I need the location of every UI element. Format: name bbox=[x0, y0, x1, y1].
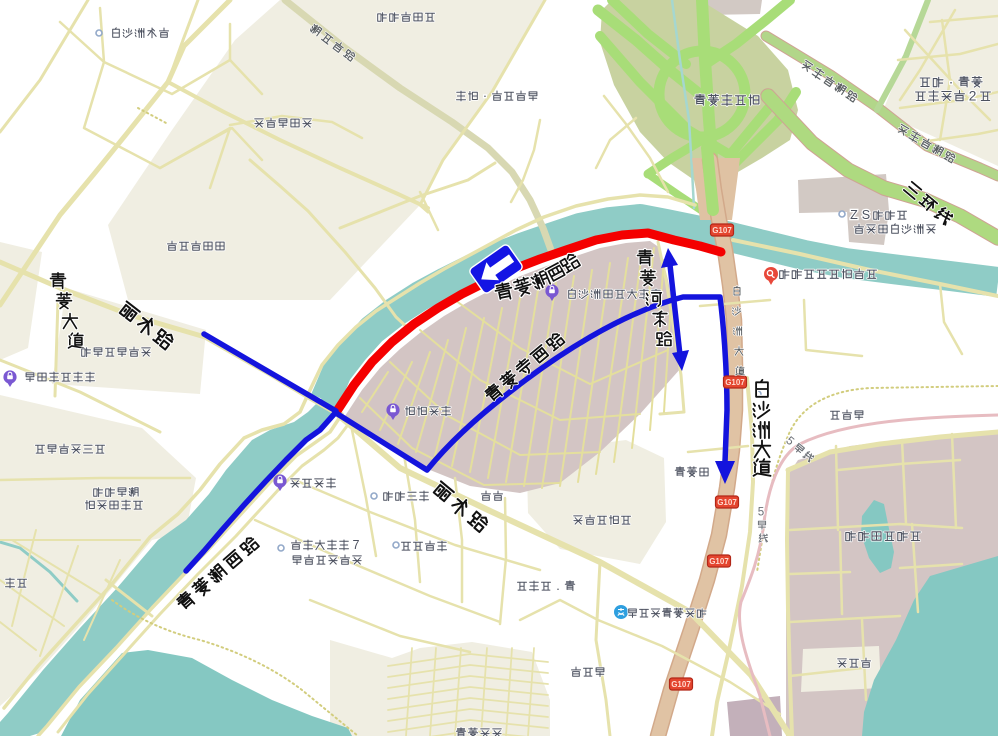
svg-text:·: · bbox=[483, 89, 487, 103]
svg-text:G107: G107 bbox=[725, 378, 745, 387]
svg-text:G107: G107 bbox=[709, 557, 729, 566]
svg-text:.: . bbox=[556, 579, 560, 593]
svg-text:2: 2 bbox=[969, 89, 977, 104]
svg-text:G107: G107 bbox=[717, 498, 737, 507]
svg-text:G107: G107 bbox=[671, 680, 691, 689]
svg-text:5: 5 bbox=[758, 506, 764, 519]
svg-text:Z: Z bbox=[850, 208, 858, 222]
svg-text:7: 7 bbox=[352, 538, 359, 552]
svg-text:S: S bbox=[862, 208, 870, 222]
svg-text:G107: G107 bbox=[712, 226, 732, 235]
svg-text:·: · bbox=[949, 75, 954, 90]
